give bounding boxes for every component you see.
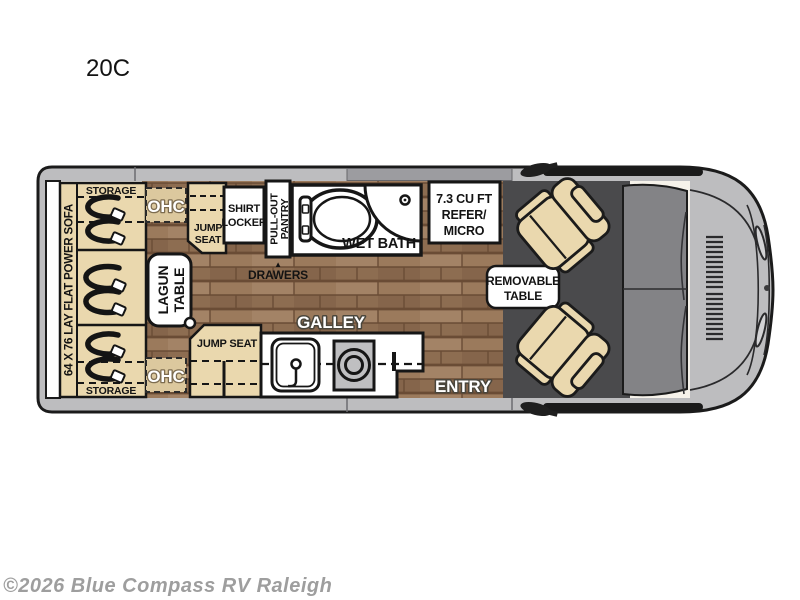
shirt-locker: SHIRT LOCKER — [221, 187, 267, 243]
windshield — [623, 185, 687, 395]
refer-label-2: REFER/ — [442, 208, 487, 222]
refer-label-1: 7.3 CU FT — [436, 192, 492, 206]
cab-rail-top — [543, 168, 703, 176]
shirt-locker-label-2: LOCKER — [221, 217, 267, 229]
floorplan-model-title: 20C — [86, 55, 130, 83]
pantry-label-2: PANTRY — [279, 198, 291, 239]
faucet — [292, 360, 301, 369]
storage-bottom-label: STORAGE — [86, 385, 137, 397]
jump-seat-top-label-1: JUMP — [194, 222, 223, 234]
lagun-table: LAGUN TABLE — [148, 254, 195, 328]
jump-seat-top-label-2: SEAT — [195, 234, 222, 246]
grille-icon — [706, 237, 723, 339]
ohc-bottom: OHC — [146, 358, 186, 392]
ohc-top: OHC — [146, 188, 186, 222]
refer-label-3: MICRO — [444, 224, 485, 238]
ohc-top-label: OHC — [147, 197, 184, 216]
jump-seat-top: JUMP SEAT — [188, 183, 226, 253]
drawers-label: DRAWERS — [248, 268, 308, 282]
lagun-table-label-1: LAGUN — [155, 266, 171, 315]
removable-table-label-1: REMOVABLE — [486, 274, 560, 288]
removable-table: REMOVABLE TABLE — [486, 266, 560, 308]
watermark: ©2026 Blue Compass RV Raleigh — [3, 575, 332, 598]
galley-label: GALLEY — [297, 313, 366, 332]
ohc-bottom-label: OHC — [147, 367, 184, 386]
shirt-locker-label-1: SHIRT — [228, 203, 260, 215]
side-window-top — [347, 169, 512, 181]
lagun-table-mount — [185, 318, 195, 328]
lagun-table-label-2: TABLE — [171, 268, 187, 313]
sofa-label: 64 X 76 LAY FLAT POWER SOFA — [64, 204, 76, 376]
floorplan-svg: STORAGE STORAGE 64 X 76 LAY FLAT POWER S… — [0, 0, 800, 600]
wet-bath: WET BATH — [292, 185, 421, 255]
removable-table-label-2: TABLE — [504, 289, 542, 303]
cab-rail-bottom — [543, 403, 703, 411]
entry-label: ENTRY — [435, 377, 492, 396]
power-sofa: STORAGE STORAGE 64 X 76 LAY FLAT POWER S… — [60, 183, 146, 397]
cooktop — [334, 341, 374, 390]
pullout-pantry: PULL-OUT PANTRY — [266, 181, 291, 257]
jump-seat-bottom-label: JUMP SEAT — [197, 338, 258, 350]
sink — [272, 339, 319, 391]
rear-doors — [46, 181, 60, 398]
front-badge-icon — [764, 285, 770, 291]
refrigerator-microwave: 7.3 CU FT REFER/ MICRO — [429, 182, 500, 243]
floorplan-page: 20C — [0, 0, 800, 600]
wet-bath-label: WET BATH — [342, 236, 416, 252]
jump-seat-bottom: JUMP SEAT — [190, 325, 261, 397]
